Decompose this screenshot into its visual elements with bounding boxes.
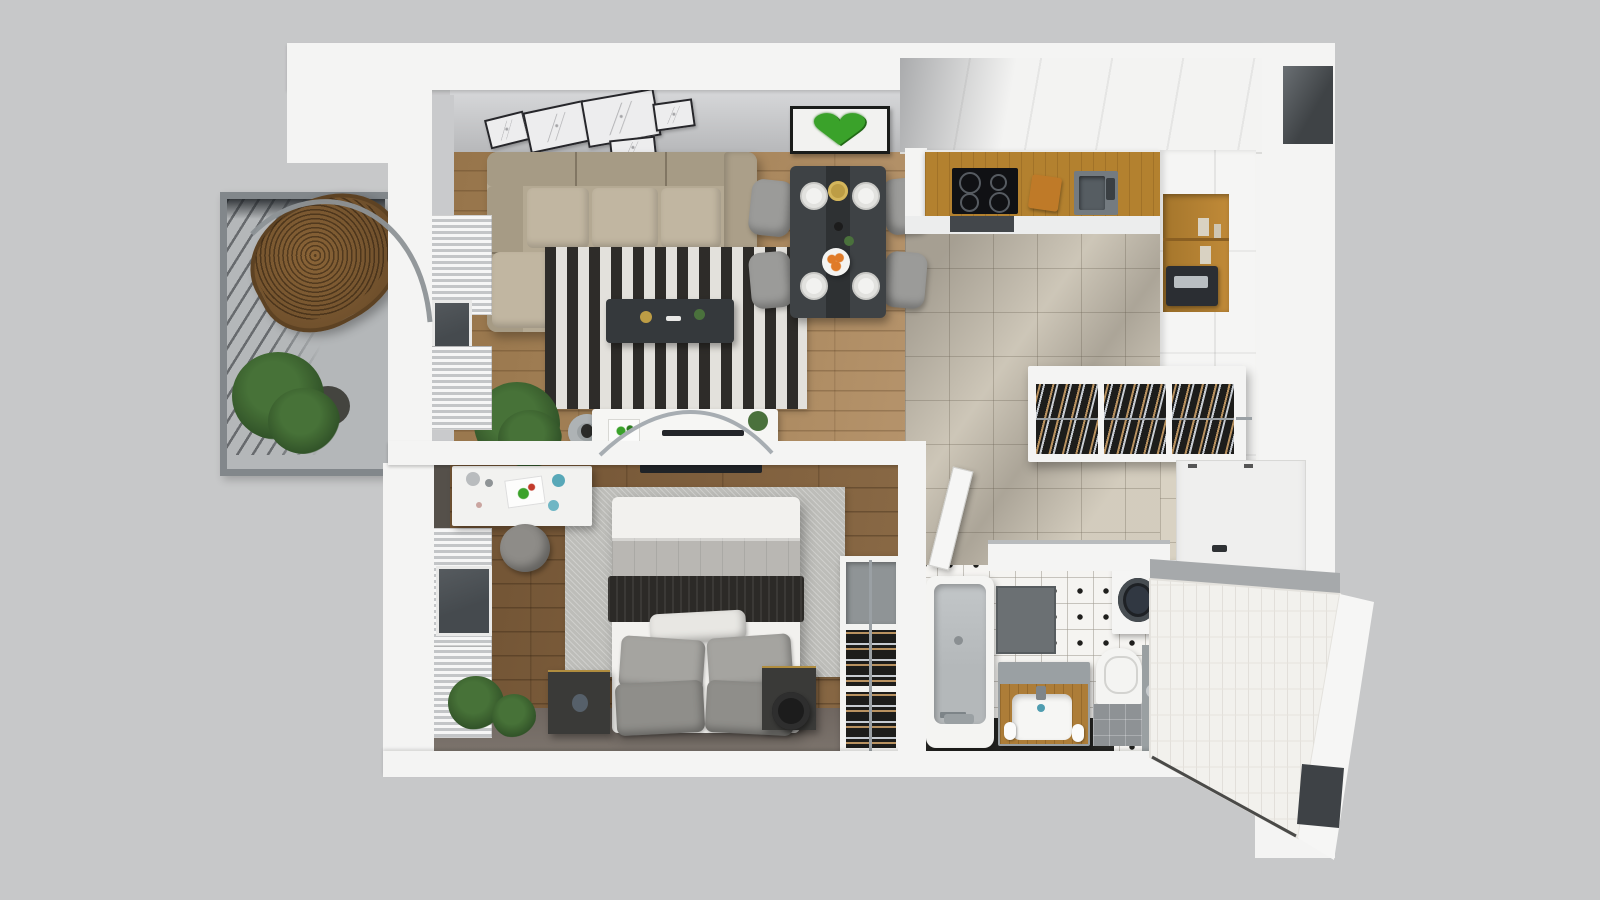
media-bench-arc [600,412,772,455]
floor-plan-render: ♥ [0,0,1600,900]
overlay-shapes [0,0,1600,900]
wall-niche-bottom-right [1297,764,1344,828]
hanging-chair-stand [252,202,430,322]
